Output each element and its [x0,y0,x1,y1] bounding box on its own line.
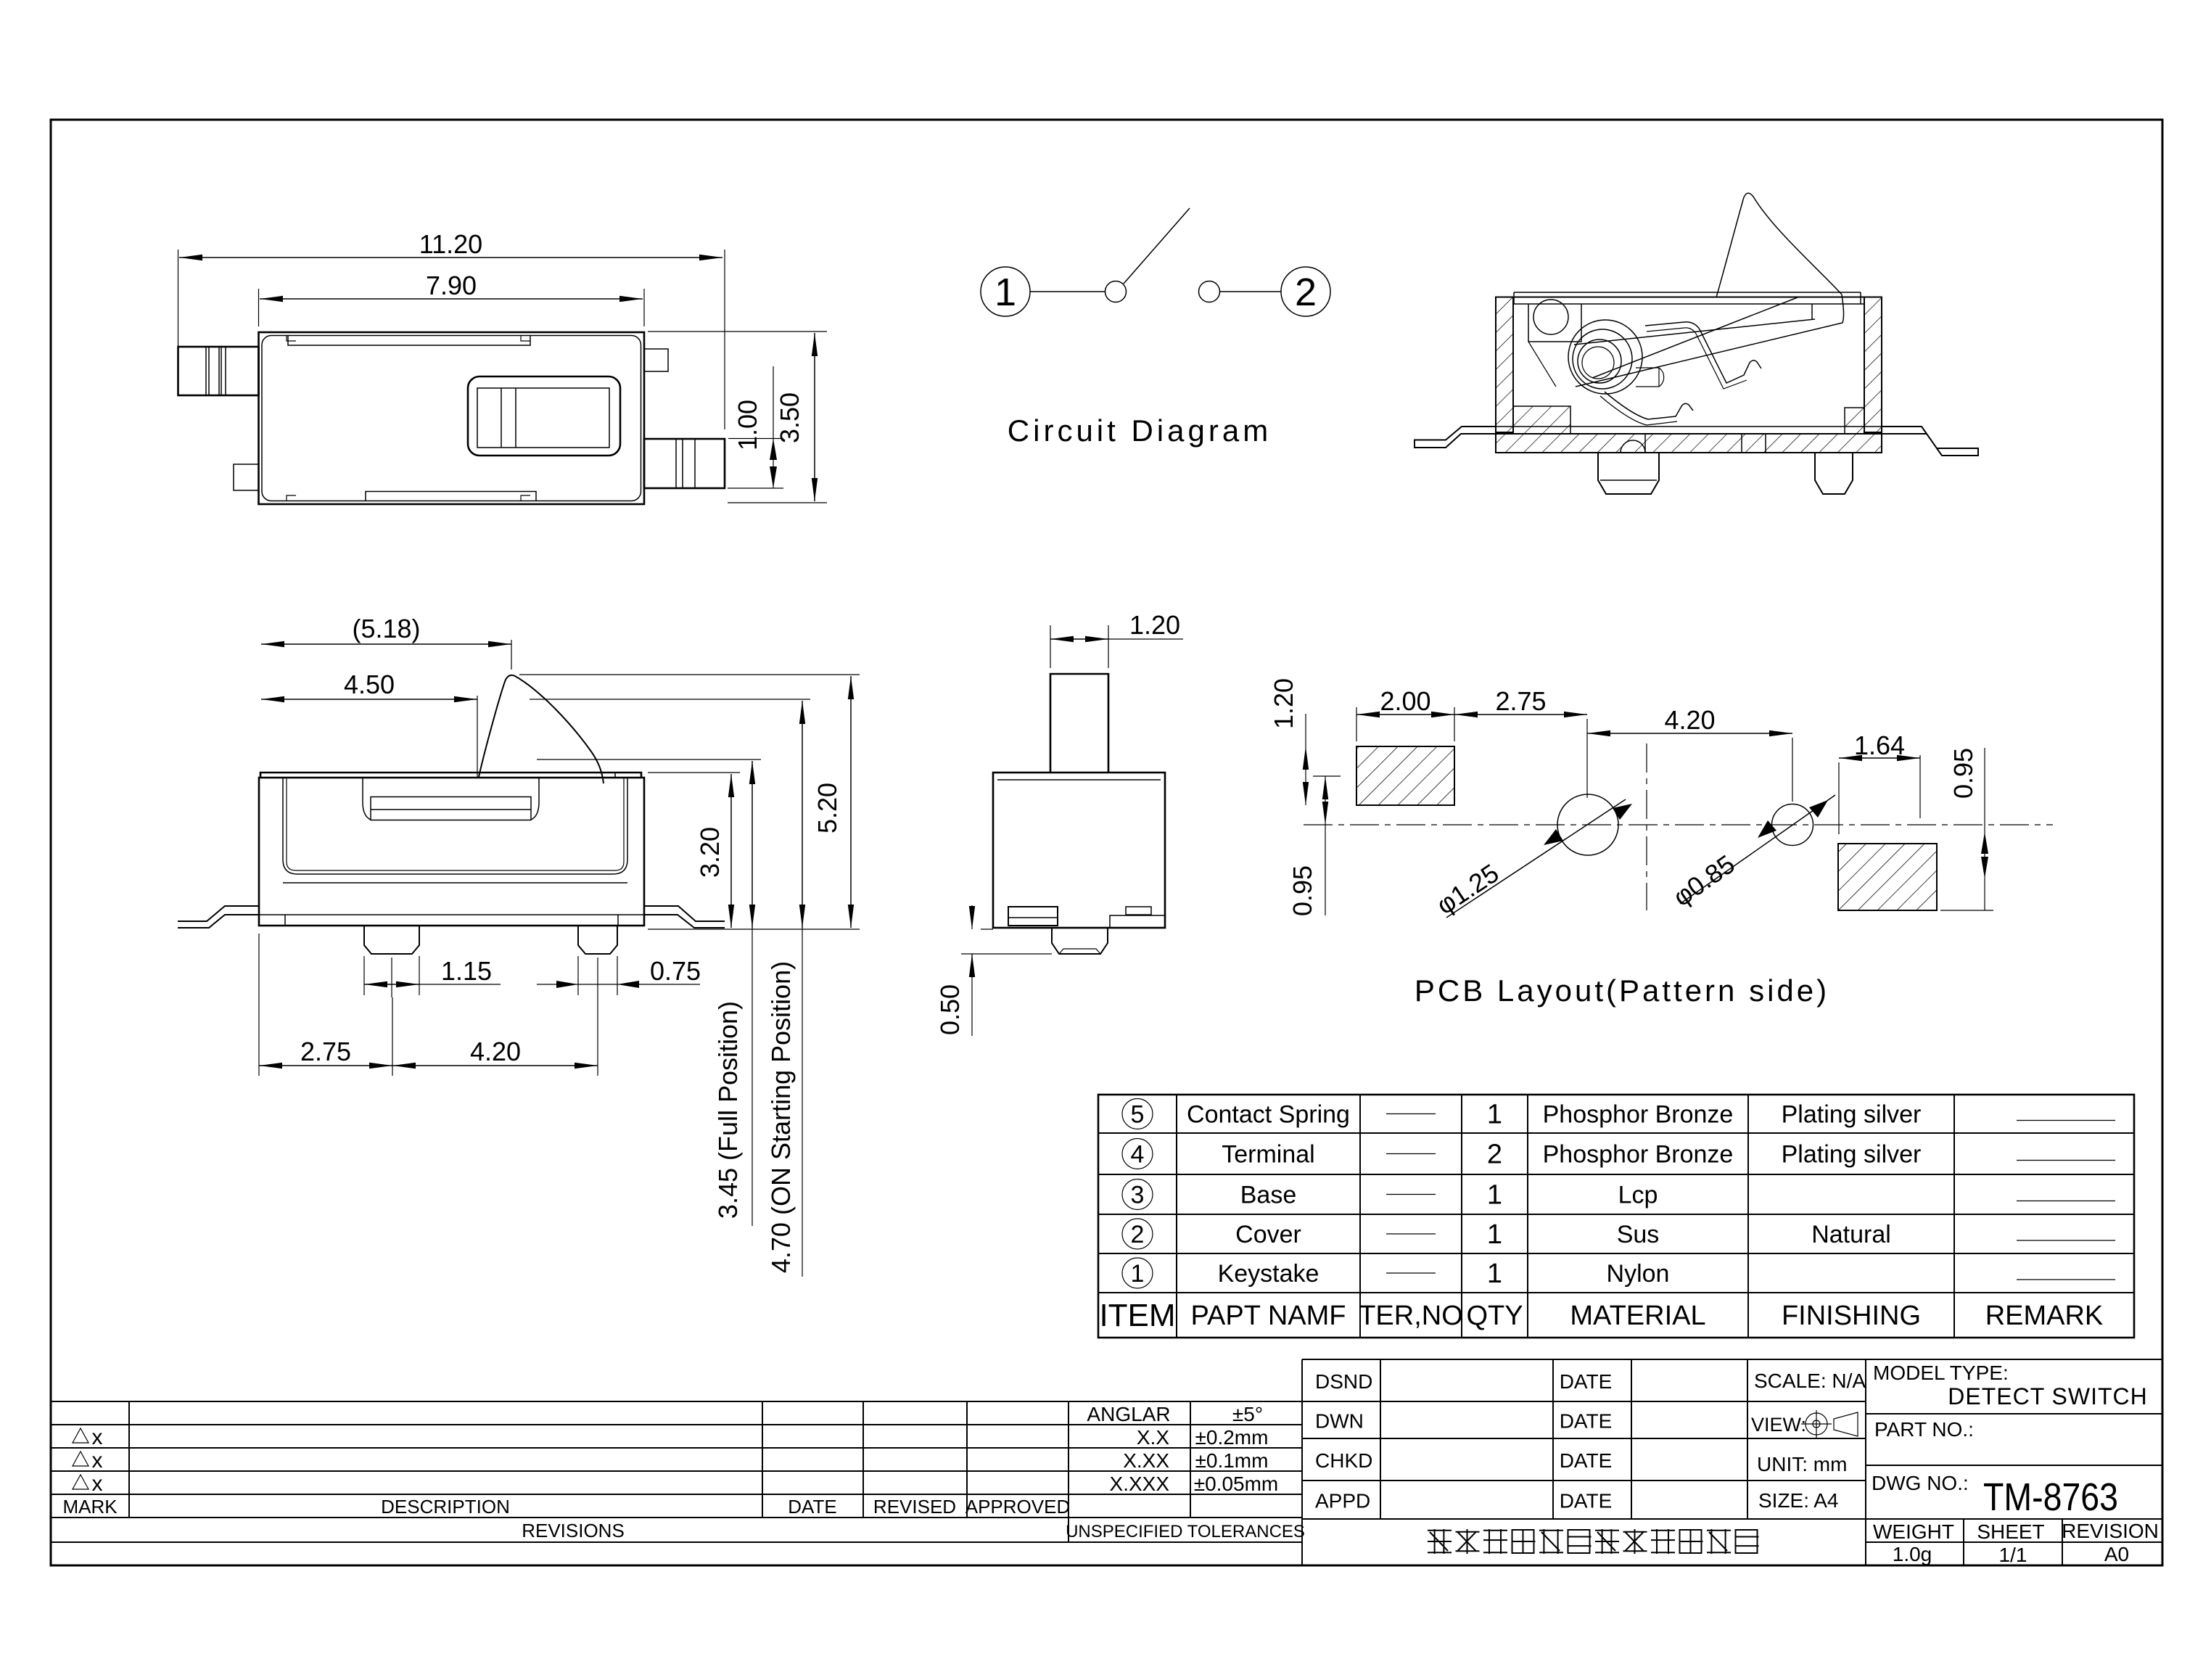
svg-text:Nylon: Nylon [1607,1260,1670,1288]
svg-text:2: 2 [1295,271,1317,314]
svg-text:1.64: 1.64 [1854,730,1905,760]
svg-text:3: 3 [1131,1182,1145,1209]
svg-text:2.75: 2.75 [300,1037,351,1066]
svg-text:7.90: 7.90 [426,271,477,300]
svg-text:4.70 (ON Starting Position): 4.70 (ON Starting Position) [766,961,796,1273]
svg-text:0.95: 0.95 [1288,865,1317,916]
svg-text:Base: Base [1240,1182,1297,1209]
svg-text:SHEET: SHEET [1977,1520,2044,1543]
svg-text:DWN: DWN [1315,1410,1364,1433]
svg-text:DSND: DSND [1315,1370,1372,1393]
svg-text:1.15: 1.15 [441,956,492,986]
svg-text:TM-8763: TM-8763 [1983,1475,2118,1519]
svg-text:WEIGHT: WEIGHT [1873,1520,1954,1543]
svg-text:Contact Spring: Contact Spring [1187,1101,1350,1129]
svg-text:DATE: DATE [1560,1410,1613,1433]
svg-text:Lcp: Lcp [1618,1182,1658,1209]
svg-text:REVISIONS: REVISIONS [522,1520,625,1541]
svg-text:TER,NO: TER,NO [1359,1301,1463,1331]
svg-text:PAPT NAMF: PAPT NAMF [1191,1301,1346,1331]
svg-text:REMARK: REMARK [1985,1301,2104,1331]
svg-text:X.X: X.X [1137,1426,1169,1449]
svg-text:REVISION: REVISION [2062,1520,2159,1542]
svg-text:5.20: 5.20 [812,783,842,833]
svg-text:QTY: QTY [1466,1301,1523,1331]
svg-text:1.0g: 1.0g [1893,1543,1932,1565]
svg-text:1: 1 [1487,1259,1502,1289]
svg-text:1: 1 [1487,1219,1502,1250]
svg-text:±0.05mm: ±0.05mm [1194,1473,1279,1495]
svg-text:3.50: 3.50 [775,392,804,443]
svg-text:Keystake: Keystake [1218,1260,1319,1288]
svg-text:0.50: 0.50 [935,984,965,1035]
svg-text:Cover: Cover [1235,1221,1301,1248]
svg-text:±0.1mm: ±0.1mm [1195,1449,1269,1472]
svg-text:±0.2mm: ±0.2mm [1195,1426,1269,1449]
svg-text:DATE: DATE [1560,1449,1613,1472]
svg-text:A0: A0 [2104,1543,2129,1565]
svg-text:3.45 (Full Position): 3.45 (Full Position) [713,1001,743,1219]
svg-text:Plating silver: Plating silver [1782,1101,1922,1129]
svg-text:REVISED: REVISED [873,1496,956,1518]
svg-text:DATE: DATE [1560,1370,1613,1393]
svg-text:PCB Layout(Pattern side): PCB Layout(Pattern side) [1415,973,1829,1008]
svg-text:APPROVED: APPROVED [965,1496,1071,1518]
svg-text:VIEW:: VIEW: [1751,1414,1806,1436]
svg-text:DETECT SWITCH: DETECT SWITCH [1948,1383,2148,1409]
svg-text:Phosphor Bronze: Phosphor Bronze [1543,1141,1734,1169]
svg-text:x: x [92,1449,103,1473]
svg-text:Terminal: Terminal [1222,1141,1314,1169]
svg-text:UNIT: mm: UNIT: mm [1757,1453,1847,1475]
svg-text:1.20: 1.20 [1269,678,1298,729]
svg-text:DATE: DATE [1560,1490,1613,1512]
svg-text:5: 5 [1131,1101,1145,1129]
svg-text:SCALE: N/A: SCALE: N/A [1754,1370,1866,1392]
svg-text:4: 4 [1131,1141,1145,1169]
svg-text:Natural: Natural [1811,1221,1891,1248]
svg-text:0.95: 0.95 [1948,748,1978,799]
svg-text:MARK: MARK [62,1496,118,1518]
svg-text:2.00: 2.00 [1380,686,1430,716]
svg-text:2: 2 [1487,1140,1502,1170]
svg-text:MATERIAL: MATERIAL [1570,1301,1705,1331]
svg-text:SIZE: A4: SIZE: A4 [1758,1489,1839,1512]
svg-text:UNSPECIFIED TOLERANCES: UNSPECIFIED TOLERANCES [1066,1522,1305,1541]
svg-text:Circuit Diagram: Circuit Diagram [1008,413,1272,448]
svg-text:DATE: DATE [788,1496,836,1518]
svg-text:1/1: 1/1 [1999,1544,2027,1566]
svg-text:FINISHING: FINISHING [1782,1301,1921,1331]
svg-text:0.75: 0.75 [650,956,701,986]
svg-text:1.00: 1.00 [733,400,762,450]
svg-text:1: 1 [1131,1260,1145,1288]
svg-text:APPD: APPD [1315,1490,1370,1512]
svg-text:(5.18): (5.18) [352,614,420,643]
svg-text:DESCRIPTION: DESCRIPTION [381,1496,510,1518]
svg-text:x: x [92,1472,103,1496]
svg-text:ANGLAR: ANGLAR [1087,1403,1170,1425]
svg-text:4.20: 4.20 [470,1037,521,1066]
svg-text:2: 2 [1131,1221,1145,1248]
svg-text:Sus: Sus [1617,1221,1660,1248]
svg-text:3.20: 3.20 [695,827,725,878]
svg-text:4.20: 4.20 [1664,705,1715,735]
svg-text:1: 1 [1487,1100,1502,1130]
svg-text:MODEL TYPE:: MODEL TYPE: [1873,1362,2009,1384]
svg-text:DWG NO.:: DWG NO.: [1872,1472,1969,1494]
svg-text:PART NO.:: PART NO.: [1874,1418,1974,1441]
svg-text:Plating silver: Plating silver [1782,1141,1922,1169]
svg-text:1: 1 [1487,1180,1502,1211]
svg-text:1: 1 [995,271,1016,314]
svg-text:Phosphor Bronze: Phosphor Bronze [1543,1101,1734,1129]
svg-text:2.75: 2.75 [1495,686,1546,716]
svg-text:±5°: ±5° [1232,1403,1263,1425]
svg-text:4.50: 4.50 [344,670,395,699]
svg-text:ITEM: ITEM [1099,1298,1175,1333]
svg-text:1.20: 1.20 [1129,610,1180,640]
svg-text:x: x [92,1425,103,1449]
svg-text:X.XX: X.XX [1123,1449,1169,1472]
svg-text:11.20: 11.20 [419,229,482,259]
svg-text:CHKD: CHKD [1315,1449,1372,1472]
svg-text:X.XXX: X.XXX [1110,1473,1170,1495]
